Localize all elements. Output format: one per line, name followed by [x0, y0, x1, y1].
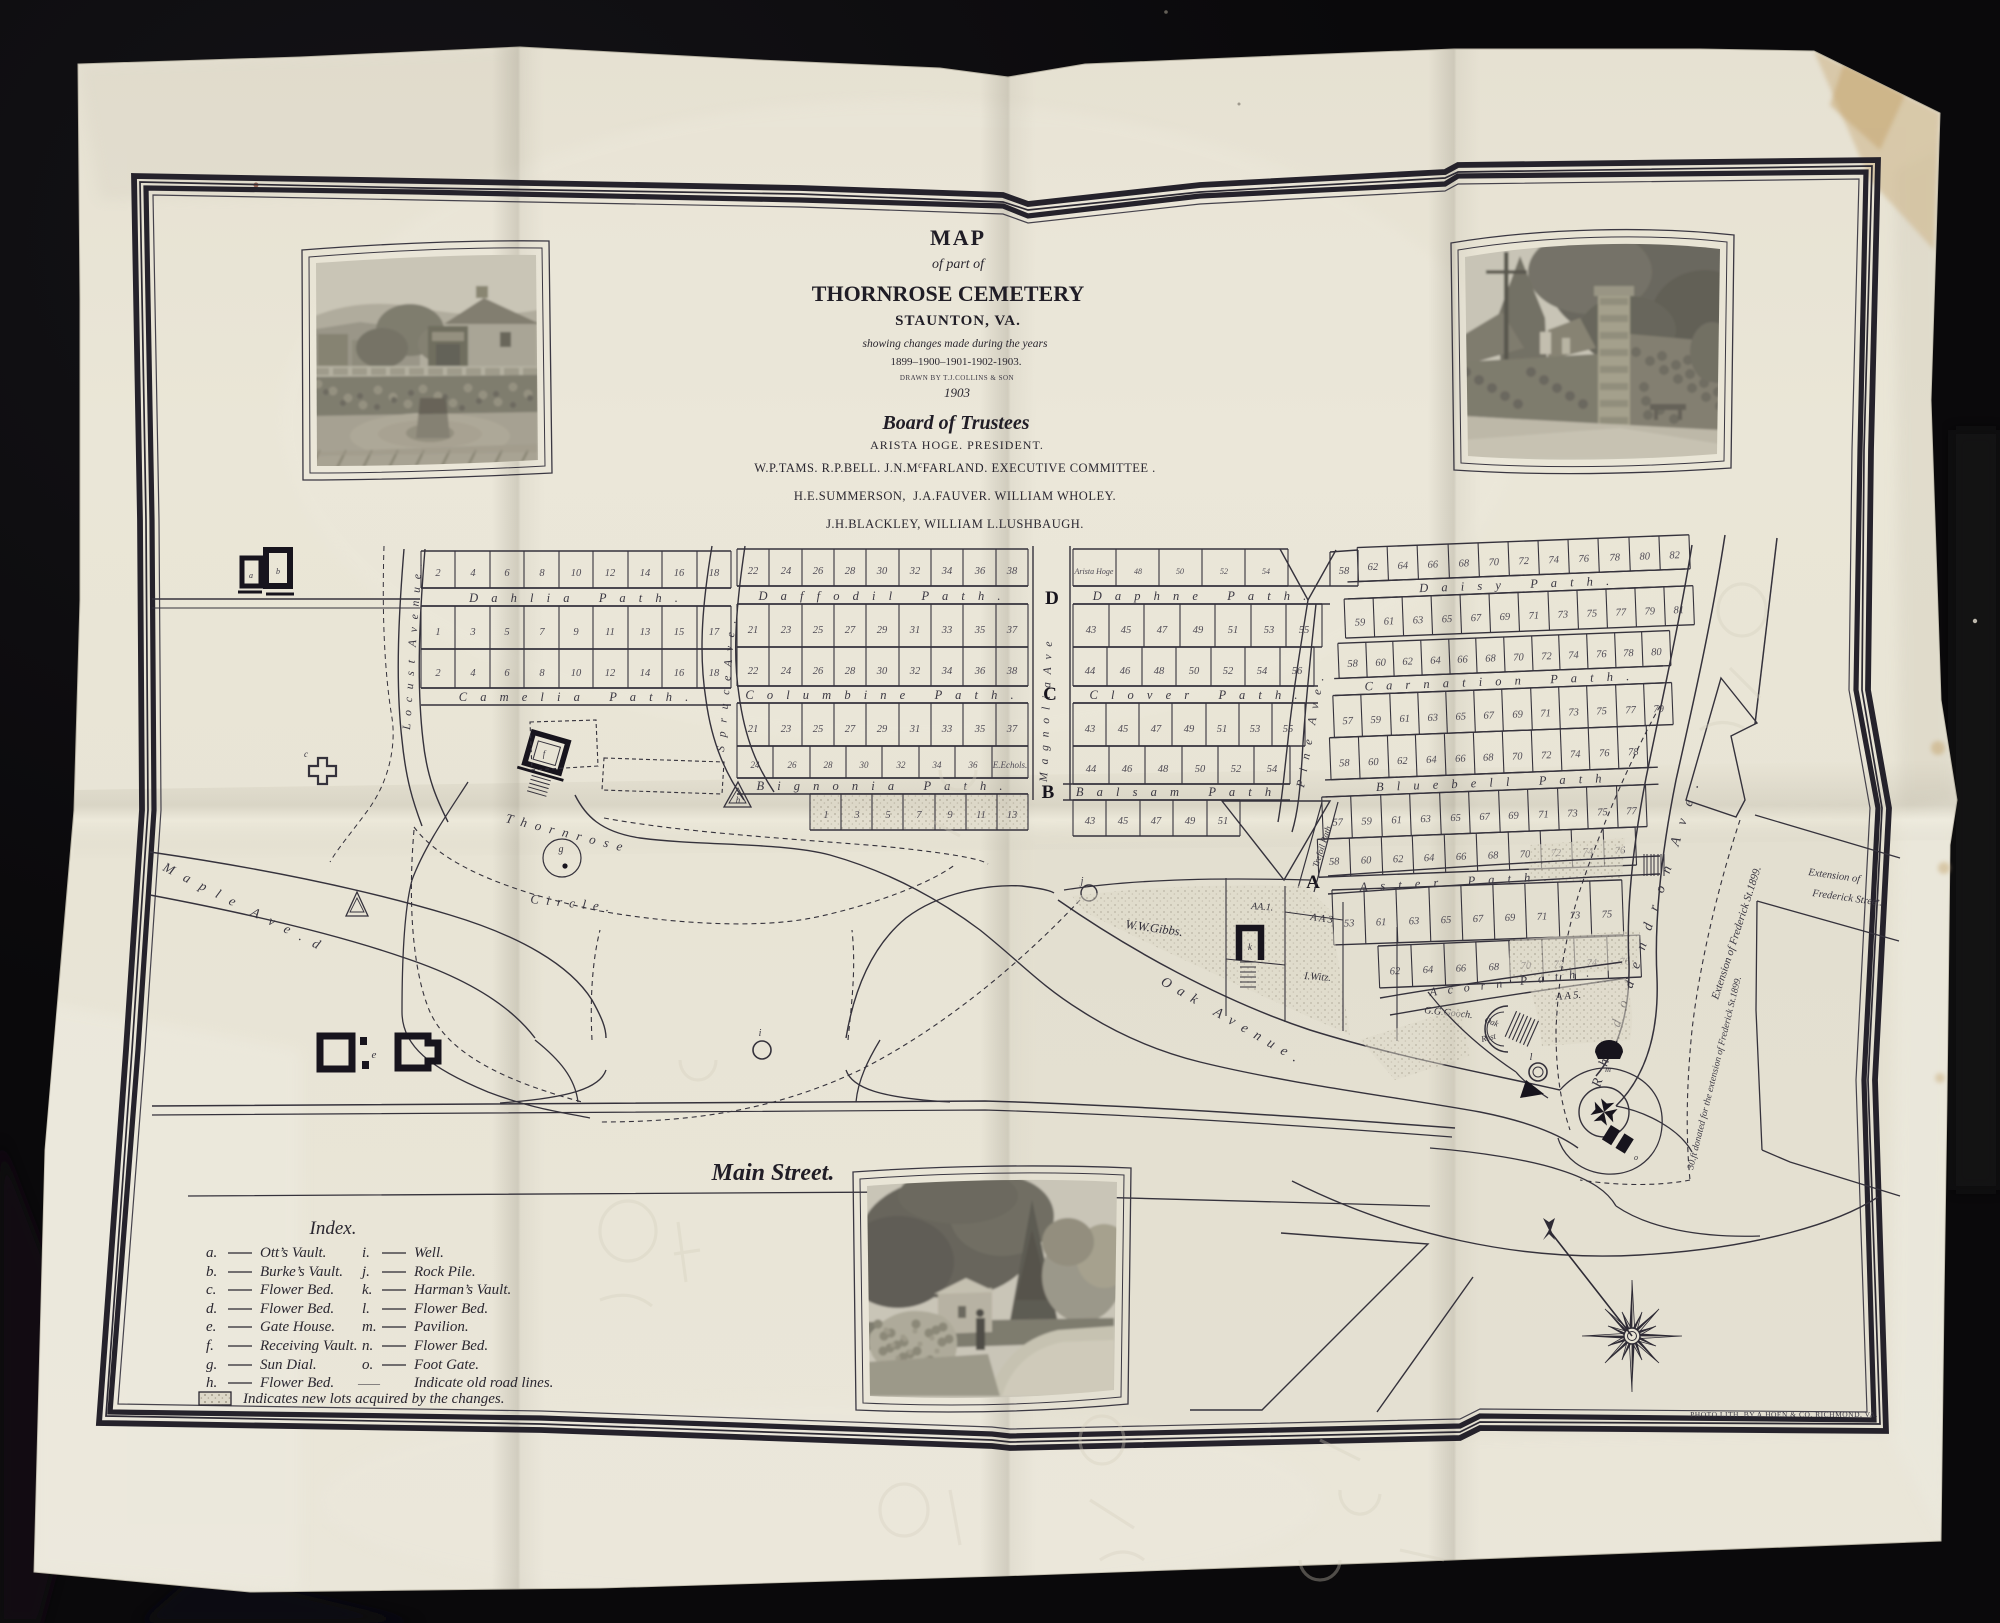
svg-text:Burke’s Vault.: Burke’s Vault.: [260, 1264, 343, 1280]
svg-text:64: 64: [1426, 755, 1438, 766]
svg-text:B a l s a m P a t h: B a l s a m P a t h: [1076, 785, 1276, 799]
svg-text:16: 16: [674, 568, 685, 579]
svg-text:Flower Bed.: Flower Bed.: [259, 1282, 334, 1298]
svg-text:11: 11: [605, 627, 615, 638]
svg-text:1: 1: [435, 627, 440, 638]
svg-text:64: 64: [1397, 561, 1409, 572]
svg-text:AA.1.: AA.1.: [1250, 901, 1274, 914]
svg-text:53: 53: [1250, 724, 1261, 735]
svg-text:4: 4: [470, 668, 476, 679]
svg-text:Arista Hoge: Arista Hoge: [1074, 567, 1114, 576]
svg-text:c: c: [304, 749, 308, 759]
svg-text:52: 52: [1220, 567, 1228, 576]
svg-text:35: 35: [974, 625, 986, 636]
svg-text:C o l u m b i n e P a t h .: C o l u m b i n e P a t h .: [745, 688, 1018, 702]
svg-text:27: 27: [845, 625, 856, 636]
svg-text:76: 76: [1599, 748, 1611, 759]
svg-text:9: 9: [573, 627, 579, 638]
svg-text:28: 28: [845, 666, 856, 677]
svg-text:71: 71: [1538, 809, 1549, 820]
svg-text:W.P.TAMS. R.P.BELL. J.N.McFARL: W.P.TAMS. R.P.BELL. J.N.McFARLAND. EXECU…: [754, 460, 1156, 475]
svg-text:25: 25: [813, 724, 824, 735]
svg-text:68: 68: [1488, 850, 1500, 861]
svg-text:28: 28: [824, 760, 834, 770]
svg-text:9: 9: [947, 810, 953, 821]
svg-text:f.: f.: [206, 1338, 214, 1354]
svg-text:76: 76: [1596, 649, 1608, 660]
svg-text:Pavilion.: Pavilion.: [413, 1319, 469, 1335]
svg-text:74: 74: [1568, 650, 1580, 661]
svg-text:74: 74: [1548, 555, 1560, 566]
svg-text:37: 37: [1006, 724, 1018, 735]
svg-text:Flower Bed.: Flower Bed.: [259, 1375, 334, 1391]
svg-text:D: D: [1045, 588, 1059, 609]
svg-text:68: 68: [1485, 653, 1497, 664]
svg-text:65: 65: [1450, 813, 1461, 824]
svg-text:18: 18: [709, 668, 720, 679]
svg-text:DRAWN BY T.J.COLLINS & SON: DRAWN BY T.J.COLLINS & SON: [900, 374, 1014, 382]
svg-text:5: 5: [885, 810, 890, 821]
svg-text:63: 63: [1427, 713, 1438, 724]
svg-text:63: 63: [1413, 615, 1424, 626]
svg-text:77: 77: [1626, 806, 1638, 817]
svg-text:2: 2: [435, 568, 441, 579]
svg-text:66: 66: [1456, 852, 1468, 863]
svg-text:51: 51: [1218, 816, 1229, 827]
svg-text:Rock Pile.: Rock Pile.: [413, 1264, 476, 1280]
svg-text:36: 36: [968, 760, 979, 770]
svg-text:Indicates new lots acquired by: Indicates new lots acquired by the chang…: [242, 1391, 504, 1407]
svg-text:60: 60: [1375, 657, 1387, 668]
svg-text:11: 11: [976, 810, 986, 821]
svg-text:I.Witz.: I.Witz.: [1303, 971, 1332, 984]
svg-text:e.: e.: [206, 1319, 216, 1335]
svg-text:1: 1: [823, 810, 828, 821]
svg-text:82: 82: [1669, 550, 1681, 561]
svg-text:Sun Dial.: Sun Dial.: [260, 1357, 317, 1373]
svg-text:72: 72: [1541, 750, 1553, 761]
svg-text:J.H.BLACKLEY, WILLIAM L.LUSHBA: J.H.BLACKLEY, WILLIAM L.LUSHBAUGH.: [826, 517, 1084, 531]
svg-text:C a m e l i a P a t h .: C a m e l i a P a t h .: [459, 690, 694, 704]
svg-text:Receiving Vault.: Receiving Vault.: [259, 1338, 357, 1354]
svg-text:Flower Bed.: Flower Bed.: [413, 1338, 488, 1354]
svg-text:74: 74: [1570, 749, 1582, 760]
svg-text:48: 48: [1134, 567, 1142, 576]
svg-text:Ott’s Vault.: Ott’s Vault.: [260, 1245, 326, 1261]
svg-text:D a f f o d i l P a t h .: D a f f o d i l P a t h .: [758, 589, 1006, 603]
svg-text:54: 54: [1262, 567, 1270, 576]
svg-text:26: 26: [813, 666, 824, 677]
svg-text:73: 73: [1570, 910, 1581, 921]
svg-text:33: 33: [941, 625, 953, 636]
svg-text:o.: o.: [362, 1357, 373, 1373]
svg-text:73: 73: [1557, 609, 1568, 620]
svg-text:d.: d.: [206, 1301, 217, 1317]
svg-text:15: 15: [674, 627, 685, 638]
svg-text:36: 36: [974, 566, 986, 577]
svg-text:1903: 1903: [944, 385, 971, 400]
svg-text:45: 45: [1121, 625, 1132, 636]
svg-text:78: 78: [1609, 552, 1621, 563]
svg-text:30: 30: [876, 566, 888, 577]
svg-text:m: m: [1605, 1065, 1611, 1074]
svg-text:47: 47: [1151, 816, 1162, 827]
svg-text:50: 50: [1176, 567, 1184, 576]
svg-text:49: 49: [1193, 625, 1204, 636]
svg-text:MAP: MAP: [930, 225, 986, 250]
svg-text:j.: j.: [360, 1264, 370, 1280]
svg-text:34: 34: [941, 666, 953, 677]
svg-text:ARISTA HOGE. PRESIDENT.: ARISTA HOGE. PRESIDENT.: [870, 438, 1044, 452]
svg-text:70: 70: [1512, 751, 1524, 762]
svg-text:63: 63: [1420, 814, 1431, 825]
svg-text:22: 22: [748, 666, 759, 677]
svg-text:48: 48: [1154, 666, 1165, 677]
svg-text:38: 38: [1006, 566, 1018, 577]
svg-text:i: i: [759, 1028, 762, 1039]
svg-text:48: 48: [1158, 764, 1169, 775]
svg-text:53: 53: [1264, 625, 1275, 636]
svg-text:16: 16: [674, 668, 685, 679]
svg-text:51: 51: [1228, 625, 1239, 636]
svg-text:69: 69: [1499, 612, 1511, 623]
svg-text:30: 30: [859, 760, 870, 770]
svg-text:75: 75: [1602, 909, 1613, 920]
svg-text:66: 66: [1457, 654, 1469, 665]
svg-text:52: 52: [1223, 666, 1234, 677]
svg-text:29: 29: [877, 724, 888, 735]
svg-text:36: 36: [974, 666, 986, 677]
svg-text:59: 59: [1370, 715, 1382, 726]
svg-text:44: 44: [1085, 666, 1096, 677]
svg-text:Main Street.: Main Street.: [711, 1160, 835, 1186]
svg-text:7: 7: [539, 627, 545, 638]
svg-text:46: 46: [1120, 666, 1131, 677]
svg-text:71: 71: [1528, 611, 1539, 622]
svg-text:5: 5: [504, 627, 509, 638]
svg-text:75: 75: [1597, 807, 1608, 818]
svg-text:61: 61: [1399, 714, 1410, 725]
svg-text:showing changes made during th: showing changes made during the years: [863, 338, 1048, 350]
svg-text:43: 43: [1086, 625, 1097, 636]
svg-text:68: 68: [1483, 752, 1495, 763]
svg-text:34: 34: [932, 760, 943, 770]
svg-text:E.Echols.: E.Echols.: [992, 760, 1028, 770]
svg-text:8: 8: [539, 668, 545, 679]
svg-text:58: 58: [1339, 758, 1351, 769]
svg-text:69: 69: [1512, 709, 1524, 720]
svg-text:6: 6: [504, 668, 510, 679]
svg-text:STAUNTON, VA.: STAUNTON, VA.: [895, 313, 1021, 329]
svg-text:12: 12: [605, 668, 616, 679]
svg-text:65: 65: [1441, 915, 1452, 926]
svg-text:54: 54: [1267, 764, 1278, 775]
svg-text:45: 45: [1118, 816, 1129, 827]
svg-text:28: 28: [845, 566, 856, 577]
svg-text:30: 30: [876, 666, 888, 677]
svg-text:13: 13: [640, 627, 651, 638]
svg-text:77: 77: [1615, 607, 1627, 618]
svg-text:Harman’s Vault.: Harman’s Vault.: [413, 1282, 511, 1298]
svg-text:65: 65: [1442, 614, 1453, 625]
svg-text:64: 64: [1430, 655, 1442, 666]
svg-text:62: 62: [1390, 966, 1402, 977]
svg-text:C l o v e r P a t h .: C l o v e r P a t h .: [1089, 688, 1302, 702]
svg-text:Foot Gate.: Foot Gate.: [413, 1357, 479, 1373]
svg-text:10: 10: [571, 568, 582, 579]
svg-text:61: 61: [1384, 616, 1395, 627]
svg-text:61: 61: [1376, 917, 1387, 928]
svg-text:8: 8: [539, 568, 545, 579]
svg-text:60: 60: [1361, 855, 1373, 866]
svg-text:7: 7: [916, 810, 922, 821]
svg-text:77: 77: [1625, 705, 1637, 716]
svg-text:66: 66: [1455, 754, 1467, 765]
svg-text:47: 47: [1151, 724, 1162, 735]
svg-text:38: 38: [1006, 666, 1018, 677]
svg-text:o: o: [1634, 1153, 1638, 1162]
svg-text:b.: b.: [206, 1264, 217, 1280]
svg-text:66: 66: [1455, 963, 1467, 974]
svg-text:3: 3: [853, 810, 859, 821]
svg-text:PHOTO LITH. BY A.HOEN & CO. RI: PHOTO LITH. BY A.HOEN & CO. RICHMOND, VA…: [1690, 1410, 1878, 1419]
svg-text:C: C: [1043, 684, 1057, 705]
svg-text:62: 62: [1397, 756, 1409, 767]
svg-text:THORNROSE CEMETERY: THORNROSE CEMETERY: [812, 281, 1085, 306]
svg-text:62: 62: [1393, 854, 1405, 865]
svg-text:80: 80: [1639, 551, 1651, 562]
svg-text:75: 75: [1586, 608, 1597, 619]
svg-text:n.: n.: [362, 1338, 373, 1354]
svg-text:23: 23: [781, 724, 792, 735]
svg-text:31: 31: [909, 625, 921, 636]
svg-text:H.E.SUMMERSON, J.A.FAUVER. WI: H.E.SUMMERSON, J.A.FAUVER. WILLIAM WHOLE…: [794, 489, 1116, 503]
svg-text:68: 68: [1488, 962, 1500, 973]
svg-text:60: 60: [1368, 757, 1380, 768]
svg-text:43: 43: [1085, 724, 1096, 735]
svg-text:67: 67: [1483, 710, 1495, 721]
svg-text:72: 72: [1518, 556, 1530, 567]
svg-text:80: 80: [1651, 647, 1663, 658]
svg-text:a: a: [249, 571, 253, 580]
svg-text:e: e: [372, 1049, 377, 1061]
svg-text:l.: l.: [362, 1301, 370, 1317]
svg-text:31: 31: [909, 724, 921, 735]
svg-text:33: 33: [941, 724, 953, 735]
svg-text:34: 34: [941, 566, 953, 577]
svg-text:47: 47: [1157, 625, 1168, 636]
svg-text:4: 4: [470, 568, 476, 579]
svg-text:67: 67: [1471, 613, 1483, 624]
svg-text:h: h: [736, 795, 741, 805]
svg-text:22: 22: [748, 566, 759, 577]
svg-text:59: 59: [1355, 617, 1367, 628]
svg-text:69: 69: [1508, 811, 1520, 822]
svg-text:43: 43: [1085, 816, 1096, 827]
svg-text:71: 71: [1537, 912, 1548, 923]
svg-text:53: 53: [1344, 918, 1355, 929]
svg-text:D a h l i a P a t h .: D a h l i a P a t h .: [468, 591, 683, 605]
svg-text:13: 13: [1007, 810, 1018, 821]
svg-text:70: 70: [1488, 557, 1500, 568]
svg-text:58: 58: [1339, 566, 1350, 577]
svg-text:49: 49: [1185, 816, 1196, 827]
svg-text:58: 58: [1347, 659, 1359, 670]
svg-text:63: 63: [1409, 916, 1420, 927]
svg-text:64: 64: [1424, 853, 1436, 864]
svg-text:D a p h n e P a t h .: D a p h n e P a t h .: [1092, 589, 1312, 603]
svg-text:52: 52: [1231, 764, 1242, 775]
svg-text:66: 66: [1427, 559, 1439, 570]
svg-text:14: 14: [640, 568, 651, 579]
svg-text:Gate House.: Gate House.: [260, 1319, 335, 1335]
svg-text:6: 6: [504, 568, 510, 579]
svg-text:76: 76: [1578, 554, 1590, 565]
svg-text:21: 21: [748, 625, 759, 636]
svg-text:a.: a.: [206, 1245, 217, 1261]
svg-text:of part of: of part of: [932, 257, 986, 272]
svg-text:25: 25: [813, 625, 824, 636]
svg-text:65: 65: [1455, 711, 1466, 722]
svg-text:50: 50: [1195, 764, 1206, 775]
svg-text:59: 59: [1361, 816, 1373, 827]
svg-text:54: 54: [1257, 666, 1268, 677]
svg-text:g: g: [559, 844, 564, 855]
svg-text:70: 70: [1513, 652, 1525, 663]
svg-text:32: 32: [909, 666, 921, 677]
svg-text:26: 26: [788, 760, 798, 770]
svg-text:2: 2: [435, 668, 441, 679]
svg-text:49: 49: [1184, 724, 1195, 735]
svg-text:24: 24: [781, 566, 792, 577]
svg-text:Board of Trustees: Board of Trustees: [881, 412, 1029, 434]
svg-text:k.: k.: [362, 1282, 372, 1298]
svg-text:17: 17: [709, 627, 720, 638]
svg-text:67: 67: [1479, 812, 1491, 823]
svg-text:l: l: [1530, 1052, 1533, 1063]
svg-text:27: 27: [845, 724, 856, 735]
svg-text:64: 64: [1423, 965, 1435, 976]
svg-text:62: 62: [1402, 656, 1414, 667]
svg-text:50: 50: [1189, 666, 1200, 677]
svg-text:57: 57: [1342, 716, 1354, 727]
svg-text:Flower Bed.: Flower Bed.: [259, 1301, 334, 1317]
svg-text:62: 62: [1367, 562, 1379, 573]
svg-text:——: ——: [357, 1378, 381, 1390]
svg-text:Index.: Index.: [309, 1218, 357, 1239]
svg-text:Well.: Well.: [414, 1245, 444, 1261]
svg-text:32: 32: [909, 566, 921, 577]
svg-text:78: 78: [1623, 648, 1635, 659]
svg-text:Indicate old road lines.: Indicate old road lines.: [413, 1375, 553, 1391]
svg-text:24: 24: [781, 666, 792, 677]
svg-text:23: 23: [781, 625, 792, 636]
svg-text:Flower Bed.: Flower Bed.: [413, 1301, 488, 1317]
svg-text:45: 45: [1118, 724, 1129, 735]
svg-text:61: 61: [1391, 815, 1402, 826]
svg-text:b: b: [276, 567, 280, 576]
svg-text:79: 79: [1644, 606, 1656, 617]
svg-text:51: 51: [1217, 724, 1228, 735]
svg-text:m.: m.: [362, 1319, 377, 1335]
svg-text:35: 35: [974, 724, 986, 735]
svg-text:c.: c.: [206, 1282, 216, 1298]
svg-text:3: 3: [469, 627, 475, 638]
svg-text:10: 10: [571, 668, 582, 679]
svg-text:75: 75: [1596, 706, 1607, 717]
svg-text:32: 32: [896, 760, 907, 770]
svg-text:71: 71: [1540, 708, 1551, 719]
svg-text:h.: h.: [206, 1375, 217, 1391]
svg-text:i.: i.: [362, 1245, 370, 1261]
svg-text:73: 73: [1568, 707, 1579, 718]
svg-text:73: 73: [1567, 808, 1578, 819]
svg-text:21: 21: [748, 724, 759, 735]
svg-text:18: 18: [709, 568, 720, 579]
svg-text:37: 37: [1006, 625, 1018, 636]
svg-text:12: 12: [605, 568, 616, 579]
svg-text:29: 29: [877, 625, 888, 636]
svg-text:72: 72: [1541, 651, 1553, 662]
svg-text:1899–1900–1901-1902-1903.: 1899–1900–1901-1902-1903.: [890, 356, 1021, 368]
svg-text:g.: g.: [206, 1357, 217, 1373]
svg-text:B: B: [1042, 782, 1055, 803]
svg-text:67: 67: [1473, 914, 1485, 925]
svg-text:69: 69: [1505, 913, 1517, 924]
svg-text:26: 26: [813, 566, 824, 577]
svg-text:58: 58: [1329, 856, 1341, 867]
svg-text:44: 44: [1086, 764, 1097, 775]
svg-text:68: 68: [1458, 558, 1470, 569]
svg-text:46: 46: [1122, 764, 1133, 775]
svg-text:14: 14: [640, 668, 651, 679]
